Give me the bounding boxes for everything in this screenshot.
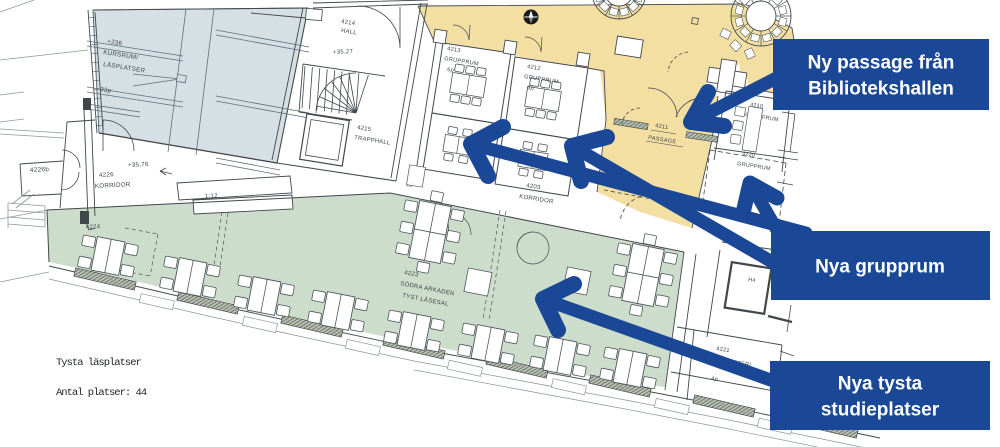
svg-text:6p: 6p — [527, 85, 535, 92]
svg-text:4p: 4p — [711, 376, 719, 383]
svg-text:4226: 4226 — [99, 171, 115, 179]
svg-text:Bibliotekshallen: Bibliotekshallen — [808, 79, 954, 100]
svg-text:6p: 6p — [447, 67, 455, 74]
svg-text:Tysta läsplatser: Tysta läsplatser — [56, 357, 142, 369]
svg-text:Nya grupprum: Nya grupprum — [815, 257, 945, 278]
svg-text:1:12: 1:12 — [205, 193, 219, 200]
svg-text:4224: 4224 — [86, 224, 101, 231]
svg-text:+35,27: +35,27 — [333, 49, 354, 56]
svg-text:studieplatser: studieplatser — [821, 400, 940, 421]
svg-text:Nya tysta: Nya tysta — [838, 374, 923, 395]
svg-text:4226b: 4226b — [30, 166, 50, 174]
svg-text:Antal platser: 44: Antal platser: 44 — [56, 387, 147, 399]
svg-text:Ny passage från: Ny passage från — [808, 53, 955, 74]
svg-text:H4: H4 — [748, 277, 756, 284]
svg-text:+35,76: +35,76 — [128, 161, 149, 169]
